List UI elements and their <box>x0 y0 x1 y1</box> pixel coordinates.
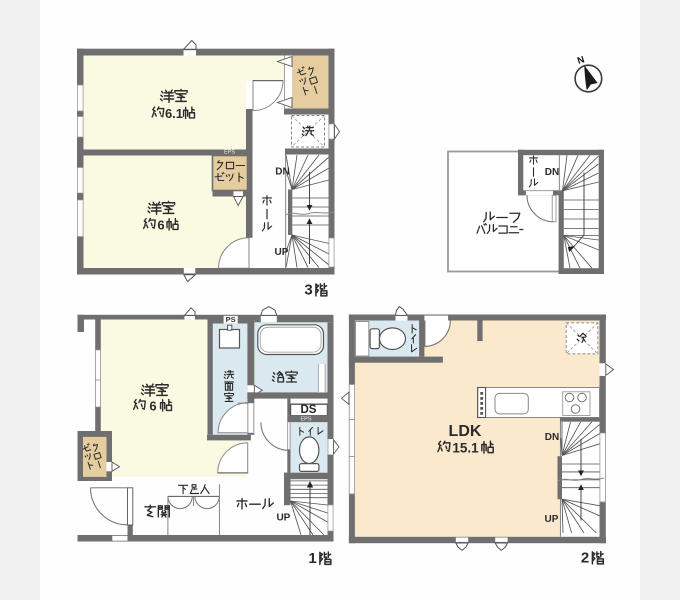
svg-text:UP: UP <box>275 247 289 258</box>
svg-text:6.1: 6.1 <box>165 106 183 121</box>
svg-text:15.1: 15.1 <box>452 441 479 456</box>
svg-text:2: 2 <box>581 550 589 567</box>
svg-text:DN: DN <box>545 432 559 443</box>
svg-text:EPS: EPS <box>300 416 311 422</box>
svg-text:PS: PS <box>226 315 236 324</box>
svg-text:3: 3 <box>304 282 312 299</box>
svg-text:1: 1 <box>308 550 316 567</box>
svg-text:DS: DS <box>301 404 317 416</box>
svg-text:DN: DN <box>545 167 559 178</box>
svg-text:LDK: LDK <box>449 423 482 440</box>
svg-text:6: 6 <box>149 399 156 414</box>
svg-text:UP: UP <box>545 514 559 525</box>
svg-text:DN: DN <box>275 167 289 178</box>
svg-text:UP: UP <box>276 513 290 524</box>
svg-text:6: 6 <box>157 218 164 233</box>
